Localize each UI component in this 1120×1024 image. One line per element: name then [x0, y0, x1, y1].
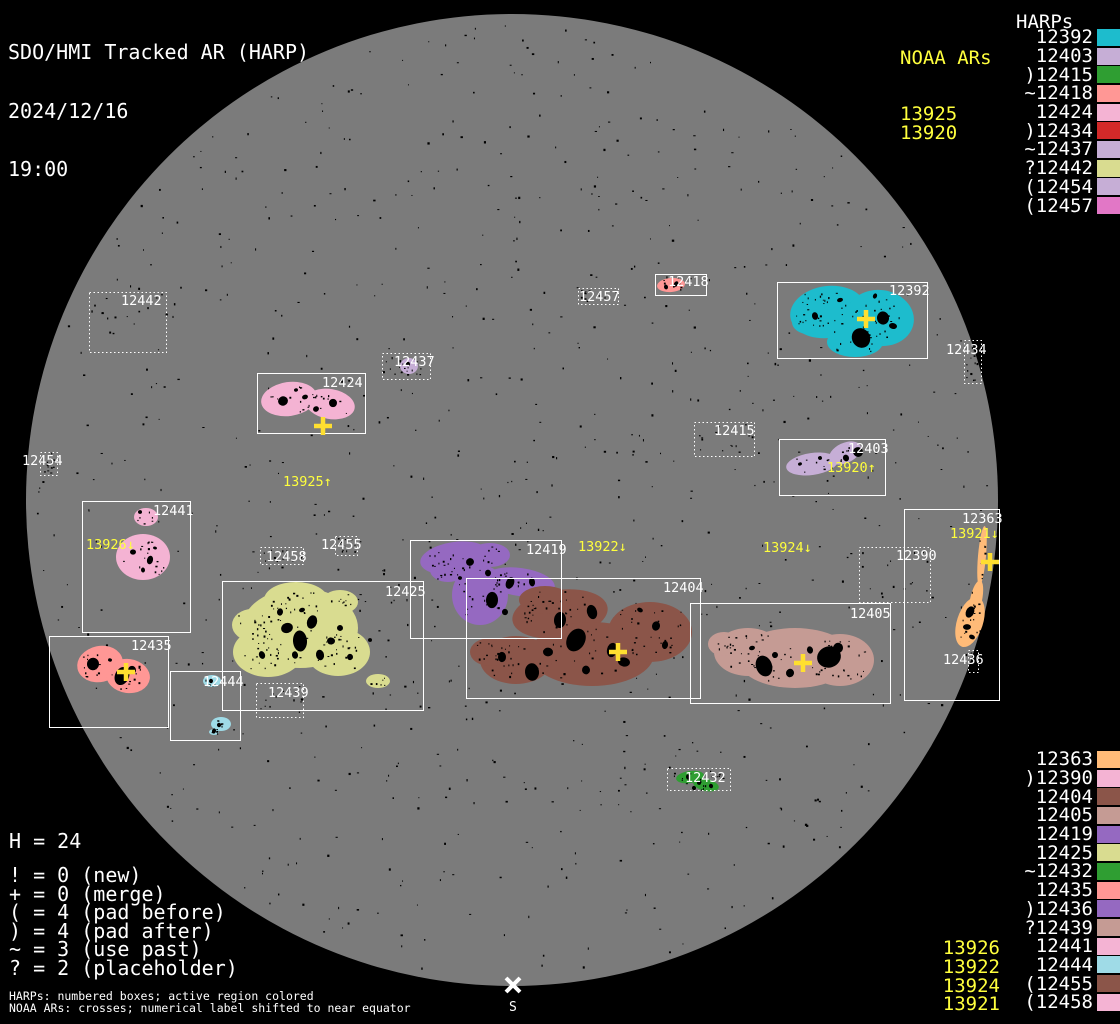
- harp-id-label: )12434: [1024, 122, 1093, 140]
- harp-list-item-12419: 12419: [1024, 825, 1120, 844]
- harp-id-label: 12441: [1036, 937, 1093, 955]
- noaa-ar-number: 13926: [943, 939, 1000, 958]
- harp-list-item-12404: 12404: [1024, 787, 1120, 806]
- harp-list-item-12455: (12455: [1024, 974, 1120, 993]
- harp-id-label: ~12432: [1024, 862, 1093, 880]
- harp-color-swatch: [1097, 788, 1120, 805]
- page-title: SDO/HMI Tracked AR (HARP): [8, 43, 309, 63]
- harp-color-swatch: [1097, 141, 1120, 158]
- harp-box-label-12404: 12404: [663, 580, 704, 596]
- harp-id-label: (12457: [1024, 197, 1093, 215]
- harp-box-label-12435: 12435: [131, 638, 172, 654]
- harp-color-swatch: [1097, 770, 1120, 787]
- harp-color-swatch: [1097, 956, 1120, 973]
- harp-list-item-12441: 12441: [1024, 937, 1120, 956]
- harp-box-label-12434: 12434: [946, 342, 987, 358]
- harp-box-label-12457: 12457: [579, 289, 620, 305]
- time-label: 19:00: [8, 160, 309, 180]
- harp-id-label: 12444: [1036, 956, 1093, 974]
- harp-box-label-12418: 12418: [668, 274, 709, 290]
- harp-list-item-12425: 12425: [1024, 843, 1120, 862]
- harp-color-swatch: [1097, 85, 1120, 102]
- harp-list-item-12403: 12403: [1024, 47, 1120, 66]
- harp-list-item-12442: ?12442: [1024, 159, 1120, 178]
- harp-box-label-12432: 12432: [685, 770, 726, 786]
- sunspot: [329, 399, 337, 407]
- harp-list-bottom: 12363)1239012404124051241912425~12432124…: [1024, 750, 1120, 1012]
- harp-color-swatch: [1097, 994, 1120, 1011]
- harp-box-label-12363: 12363: [962, 511, 1003, 527]
- harp-id-label: 12404: [1036, 788, 1093, 806]
- harp-id-label: 12403: [1036, 47, 1093, 65]
- harp-id-label: 12419: [1036, 825, 1093, 843]
- harp-list-item-12458: (12458: [1024, 993, 1120, 1012]
- noaa-ar-number: 13921: [943, 995, 1000, 1014]
- harp-id-label: )12390: [1024, 769, 1093, 787]
- harp-id-label: 12392: [1036, 28, 1093, 46]
- harp-color-swatch: [1097, 882, 1120, 899]
- harp-color-swatch: [1097, 122, 1120, 139]
- noaa-disk-label: 13922↓: [578, 539, 627, 555]
- harp-box-label-12455: 12455: [321, 537, 362, 553]
- h-count-label: H = 24: [9, 829, 81, 853]
- noaa-disk-label: 13921↓: [950, 526, 999, 542]
- harp-id-label: (12455: [1024, 975, 1093, 993]
- harp-box-label-12392: 12392: [889, 283, 930, 299]
- harp-color-swatch: [1097, 160, 1120, 177]
- noaa-ar-number: 13922: [943, 958, 1000, 977]
- harp-box-label-12442: 12442: [121, 293, 162, 309]
- harp-color-swatch: [1097, 826, 1120, 843]
- harp-id-label: )12415: [1024, 66, 1093, 84]
- harp-list-item-12390: )12390: [1024, 769, 1120, 788]
- harp-list-item-12454: (12454: [1024, 178, 1120, 197]
- harp-list-item-12444: 12444: [1024, 956, 1120, 975]
- harp-box-label-12403: 12403: [848, 441, 889, 457]
- noaa-ars-title: NOAA ARs: [900, 49, 992, 68]
- harp-box-label-12419: 12419: [526, 542, 567, 558]
- harp-color-swatch: [1097, 104, 1120, 121]
- harp-color-swatch: [1097, 900, 1120, 917]
- harp-color-swatch: [1097, 66, 1120, 83]
- harp-id-label: 12363: [1036, 750, 1093, 768]
- noaa-disk-label: 13920↑: [827, 460, 876, 476]
- harp-color-swatch: [1097, 938, 1120, 955]
- harp-box-label-12424: 12424: [322, 375, 363, 391]
- harp-color-swatch: [1097, 178, 1120, 195]
- harp-box-label-12436: 12436: [943, 652, 984, 668]
- harp-list-item-12415: )12415: [1024, 65, 1120, 84]
- harp-box-label-12437: 12437: [394, 354, 435, 370]
- noaa-disk-label: 13925↑: [283, 474, 332, 490]
- harp-list-item-12363: 12363: [1024, 750, 1120, 769]
- sunspot: [963, 624, 971, 630]
- harp-color-swatch: [1097, 975, 1120, 992]
- harp-id-label: 12435: [1036, 881, 1093, 899]
- harp-id-label: ?12439: [1024, 919, 1093, 937]
- harp-list-item-12424: 12424: [1024, 103, 1120, 122]
- noaa-disk-label: 13924↓: [763, 540, 812, 556]
- noaa-ar-number: 13925: [900, 105, 992, 124]
- harp-box-label-12415: 12415: [714, 423, 755, 439]
- harp-id-label: 12405: [1036, 806, 1093, 824]
- harp-list-item-12418: ~12418: [1024, 84, 1120, 103]
- harp-list-top: 1239212403)12415~1241812424)12434~12437?…: [1024, 28, 1120, 215]
- harp-list-item-12432: ~12432: [1024, 862, 1120, 881]
- harp-list-item-12405: 12405: [1024, 806, 1120, 825]
- harp-box-label-12439: 12439: [268, 685, 309, 701]
- harp-id-label: ~12437: [1024, 140, 1093, 158]
- harp-id-label: 12424: [1036, 103, 1093, 121]
- harp-color-swatch: [1097, 807, 1120, 824]
- harp-id-label: ~12418: [1024, 84, 1093, 102]
- harp-box-label-12441: 12441: [153, 503, 194, 519]
- noaa-disk-label: 13926↓: [86, 537, 135, 553]
- harp-list-item-12392: 12392: [1024, 28, 1120, 47]
- harp-id-label: ?12442: [1024, 159, 1093, 177]
- header: SDO/HMI Tracked AR (HARP) 2024/12/16 19:…: [8, 4, 309, 199]
- harp-list-item-12435: 12435: [1024, 881, 1120, 900]
- harp-color-swatch: [1097, 197, 1120, 214]
- harp-color-swatch: [1097, 863, 1120, 880]
- harp-box-label-12390: 12390: [896, 548, 937, 564]
- harp-id-label: )12436: [1024, 900, 1093, 918]
- harp-list-item-12457: (12457: [1024, 196, 1120, 215]
- harp-box-label-12425: 12425: [385, 584, 426, 600]
- date-label: 2024/12/16: [8, 102, 309, 122]
- legend-line: ? = 2 (placeholder): [9, 959, 238, 978]
- harp-color-swatch: [1097, 751, 1120, 768]
- harp-color-swatch: [1097, 919, 1120, 936]
- harp-list-item-12436: )12436: [1024, 900, 1120, 919]
- harp-id-label: 12425: [1036, 844, 1093, 862]
- harp-box-label-12444: 12444: [203, 674, 244, 690]
- noaa-ars-items-top: 1392513920: [900, 105, 992, 142]
- harp-list-item-12439: ?12439: [1024, 918, 1120, 937]
- harp-color-swatch: [1097, 844, 1120, 861]
- harp-list-item-12434: )12434: [1024, 121, 1120, 140]
- harp-list-item-12437: ~12437: [1024, 140, 1120, 159]
- noaa-ars-items-bottom: 13926139221392413921: [943, 939, 1000, 1014]
- harp-id-label: (12454: [1024, 178, 1093, 196]
- harp-color-swatch: [1097, 29, 1120, 46]
- south-pole-label: S: [509, 1000, 517, 1015]
- harp-box-label-12458: 12458: [266, 549, 307, 565]
- footnote-line: NOAA ARs: crosses; numerical label shift…: [9, 1002, 411, 1014]
- noaa-ars-panel-top: NOAA ARs 1392513920: [900, 12, 992, 161]
- footnotes: HARPs: numbered boxes; active region col…: [9, 990, 411, 1014]
- harp-box-label-12454: 12454: [22, 453, 63, 469]
- legend-lines: ! = 0 (new)+ = 0 (merge)( = 4 (pad befor…: [9, 866, 238, 978]
- harp-box-label-12405: 12405: [850, 606, 891, 622]
- noaa-ar-number: 13920: [900, 124, 992, 143]
- harp-id-label: (12458: [1024, 993, 1093, 1011]
- harp-color-swatch: [1097, 48, 1120, 65]
